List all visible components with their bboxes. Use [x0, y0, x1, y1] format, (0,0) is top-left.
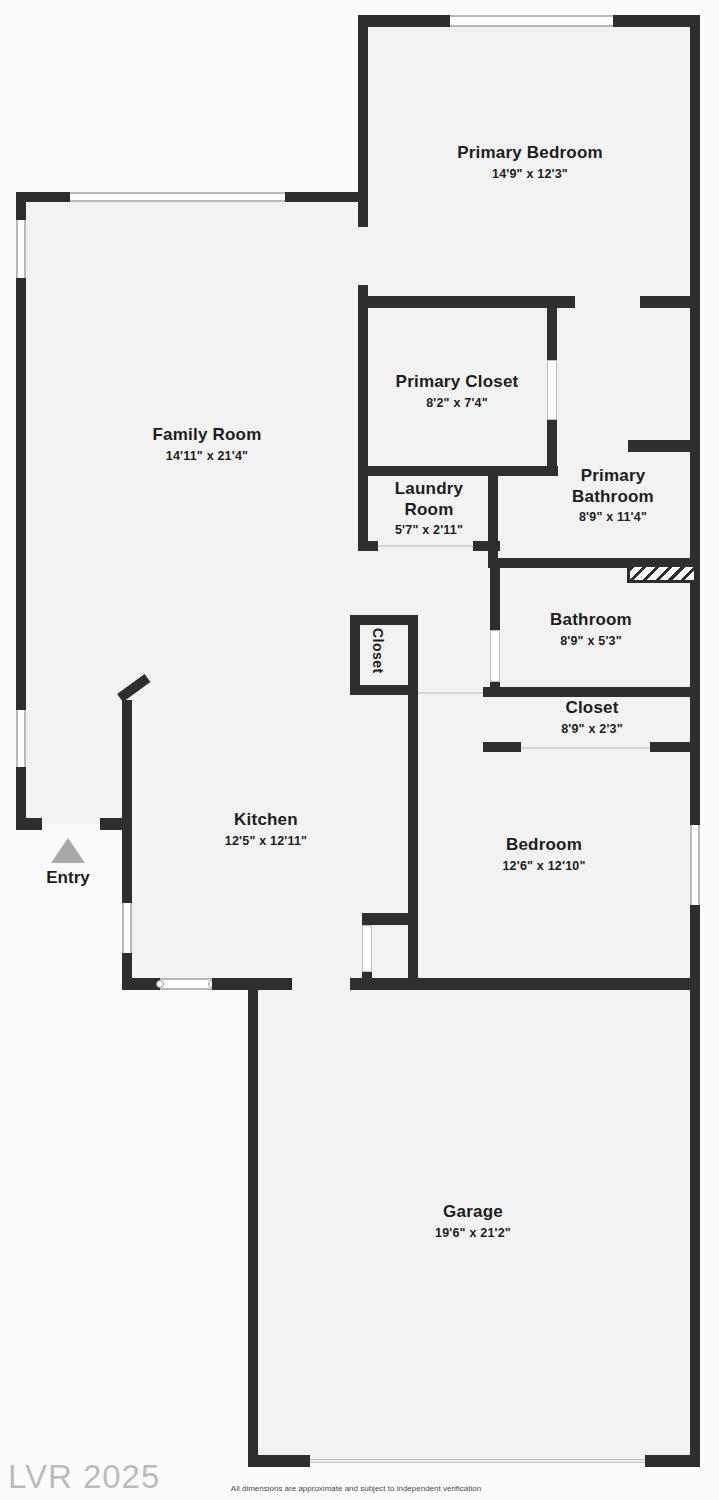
room-dims: 8'9" x 11'4": [553, 510, 673, 525]
wall-segment: [122, 978, 160, 990]
wall-segment: [690, 15, 700, 825]
room-dims: 12'5" x 12'11": [225, 834, 307, 849]
watermark: LVR 2025: [8, 1458, 160, 1496]
wall-segment: [628, 440, 700, 452]
wall-segment: [358, 302, 368, 551]
room-label-kitchen: Kitchen 12'5" x 12'11": [225, 810, 307, 849]
room-name: Bathroom: [550, 610, 632, 631]
wall-segment: [645, 1455, 700, 1467]
room-name: Primary Closet: [396, 372, 519, 393]
door: [490, 630, 500, 682]
wall-segment: [350, 978, 700, 990]
wall-segment: [483, 687, 700, 697]
room-label-garage: Garage 19'6" x 21'2": [435, 1202, 511, 1241]
room-dims: 14'11" x 21'4": [153, 449, 262, 464]
door: [362, 925, 372, 972]
room-name: Primary Bedroom: [457, 143, 603, 164]
room-label-family-room: Family Room 14'11" x 21'4": [153, 425, 262, 464]
wall-segment: [285, 192, 368, 202]
doorway-opening: [418, 692, 483, 694]
window: [450, 15, 613, 27]
room-label-hall-closet: Closet: [370, 628, 386, 674]
window: [160, 978, 212, 990]
wall-segment: [16, 192, 26, 220]
doorway-opening: [521, 747, 650, 749]
room-label-bathroom: Bathroom 8'9" x 5'3": [550, 610, 632, 649]
wall-segment: [547, 302, 557, 360]
wall-segment: [362, 913, 418, 925]
disclaimer-text: All dimensions are approximate and subje…: [231, 1484, 481, 1493]
room-label-laundry-room: Laundry Room 5'7" x 2'11": [383, 479, 475, 539]
wall-segment: [613, 15, 700, 27]
door: [547, 360, 557, 420]
wall-segment: [250, 1455, 310, 1467]
wall-segment: [248, 988, 258, 1467]
room-dims: 8'9" x 2'3": [561, 722, 623, 737]
window: [16, 220, 26, 278]
room-label-primary-bathroom: Primary Bathroom 8'9" x 11'4": [553, 466, 673, 526]
wall-segment: [483, 742, 521, 752]
wall-segment: [358, 15, 450, 27]
wall-segment: [473, 541, 500, 551]
wall-segment: [100, 818, 132, 830]
wall-segment: [640, 296, 700, 308]
doorway-opening: [378, 545, 473, 547]
room-label-primary-closet: Primary Closet 8'2" x 7'4": [396, 372, 519, 411]
wall-segment: [16, 818, 42, 830]
room-label-closet: Closet 8'9" x 2'3": [561, 698, 623, 737]
window: [70, 192, 285, 202]
wall-segment: [122, 700, 132, 818]
entry-direction-icon: [51, 838, 85, 863]
window: [122, 903, 132, 953]
room-label-bedroom: Bedroom 12'6" x 12'10": [502, 835, 585, 874]
room-label-primary-bedroom: Primary Bedroom 14'9" x 12'3": [457, 143, 603, 182]
room-name: Kitchen: [225, 810, 307, 831]
room-dims: 12'6" x 12'10": [502, 859, 585, 874]
room-dims: 8'9" x 5'3": [550, 634, 632, 649]
room-name: Family Room: [153, 425, 262, 446]
wall-segment: [358, 541, 378, 551]
room-dims: 8'2" x 7'4": [396, 396, 519, 411]
wall-segment: [408, 615, 418, 990]
room-name: Primary Bathroom: [553, 466, 673, 507]
room-name: Garage: [435, 1202, 511, 1223]
room-name: Laundry Room: [383, 479, 475, 520]
wall-segment: [547, 420, 557, 470]
room-name: Closet: [561, 698, 623, 719]
room-dims: 19'6" x 21'2": [435, 1226, 511, 1241]
wall-segment: [490, 558, 500, 630]
window: [16, 710, 26, 767]
room-dims: 5'7" x 2'11": [383, 523, 475, 538]
hatched-area: [627, 564, 697, 583]
window-end-cap: [156, 980, 164, 988]
wall-segment: [350, 615, 360, 695]
entry-label: Entry: [46, 868, 89, 888]
garage-door: [310, 1459, 645, 1463]
wall-segment: [358, 466, 558, 476]
room-dims: 14'9" x 12'3": [457, 167, 603, 182]
floor-plan: Primary Bedroom 14'9" x 12'3" Primary Cl…: [0, 0, 719, 1500]
wall-segment: [650, 742, 700, 752]
room-name: Bedroom: [502, 835, 585, 856]
wall-segment: [488, 476, 498, 568]
wall-segment: [358, 296, 575, 308]
wall-segment: [122, 830, 132, 903]
wall-segment: [16, 278, 26, 710]
window: [690, 825, 700, 905]
